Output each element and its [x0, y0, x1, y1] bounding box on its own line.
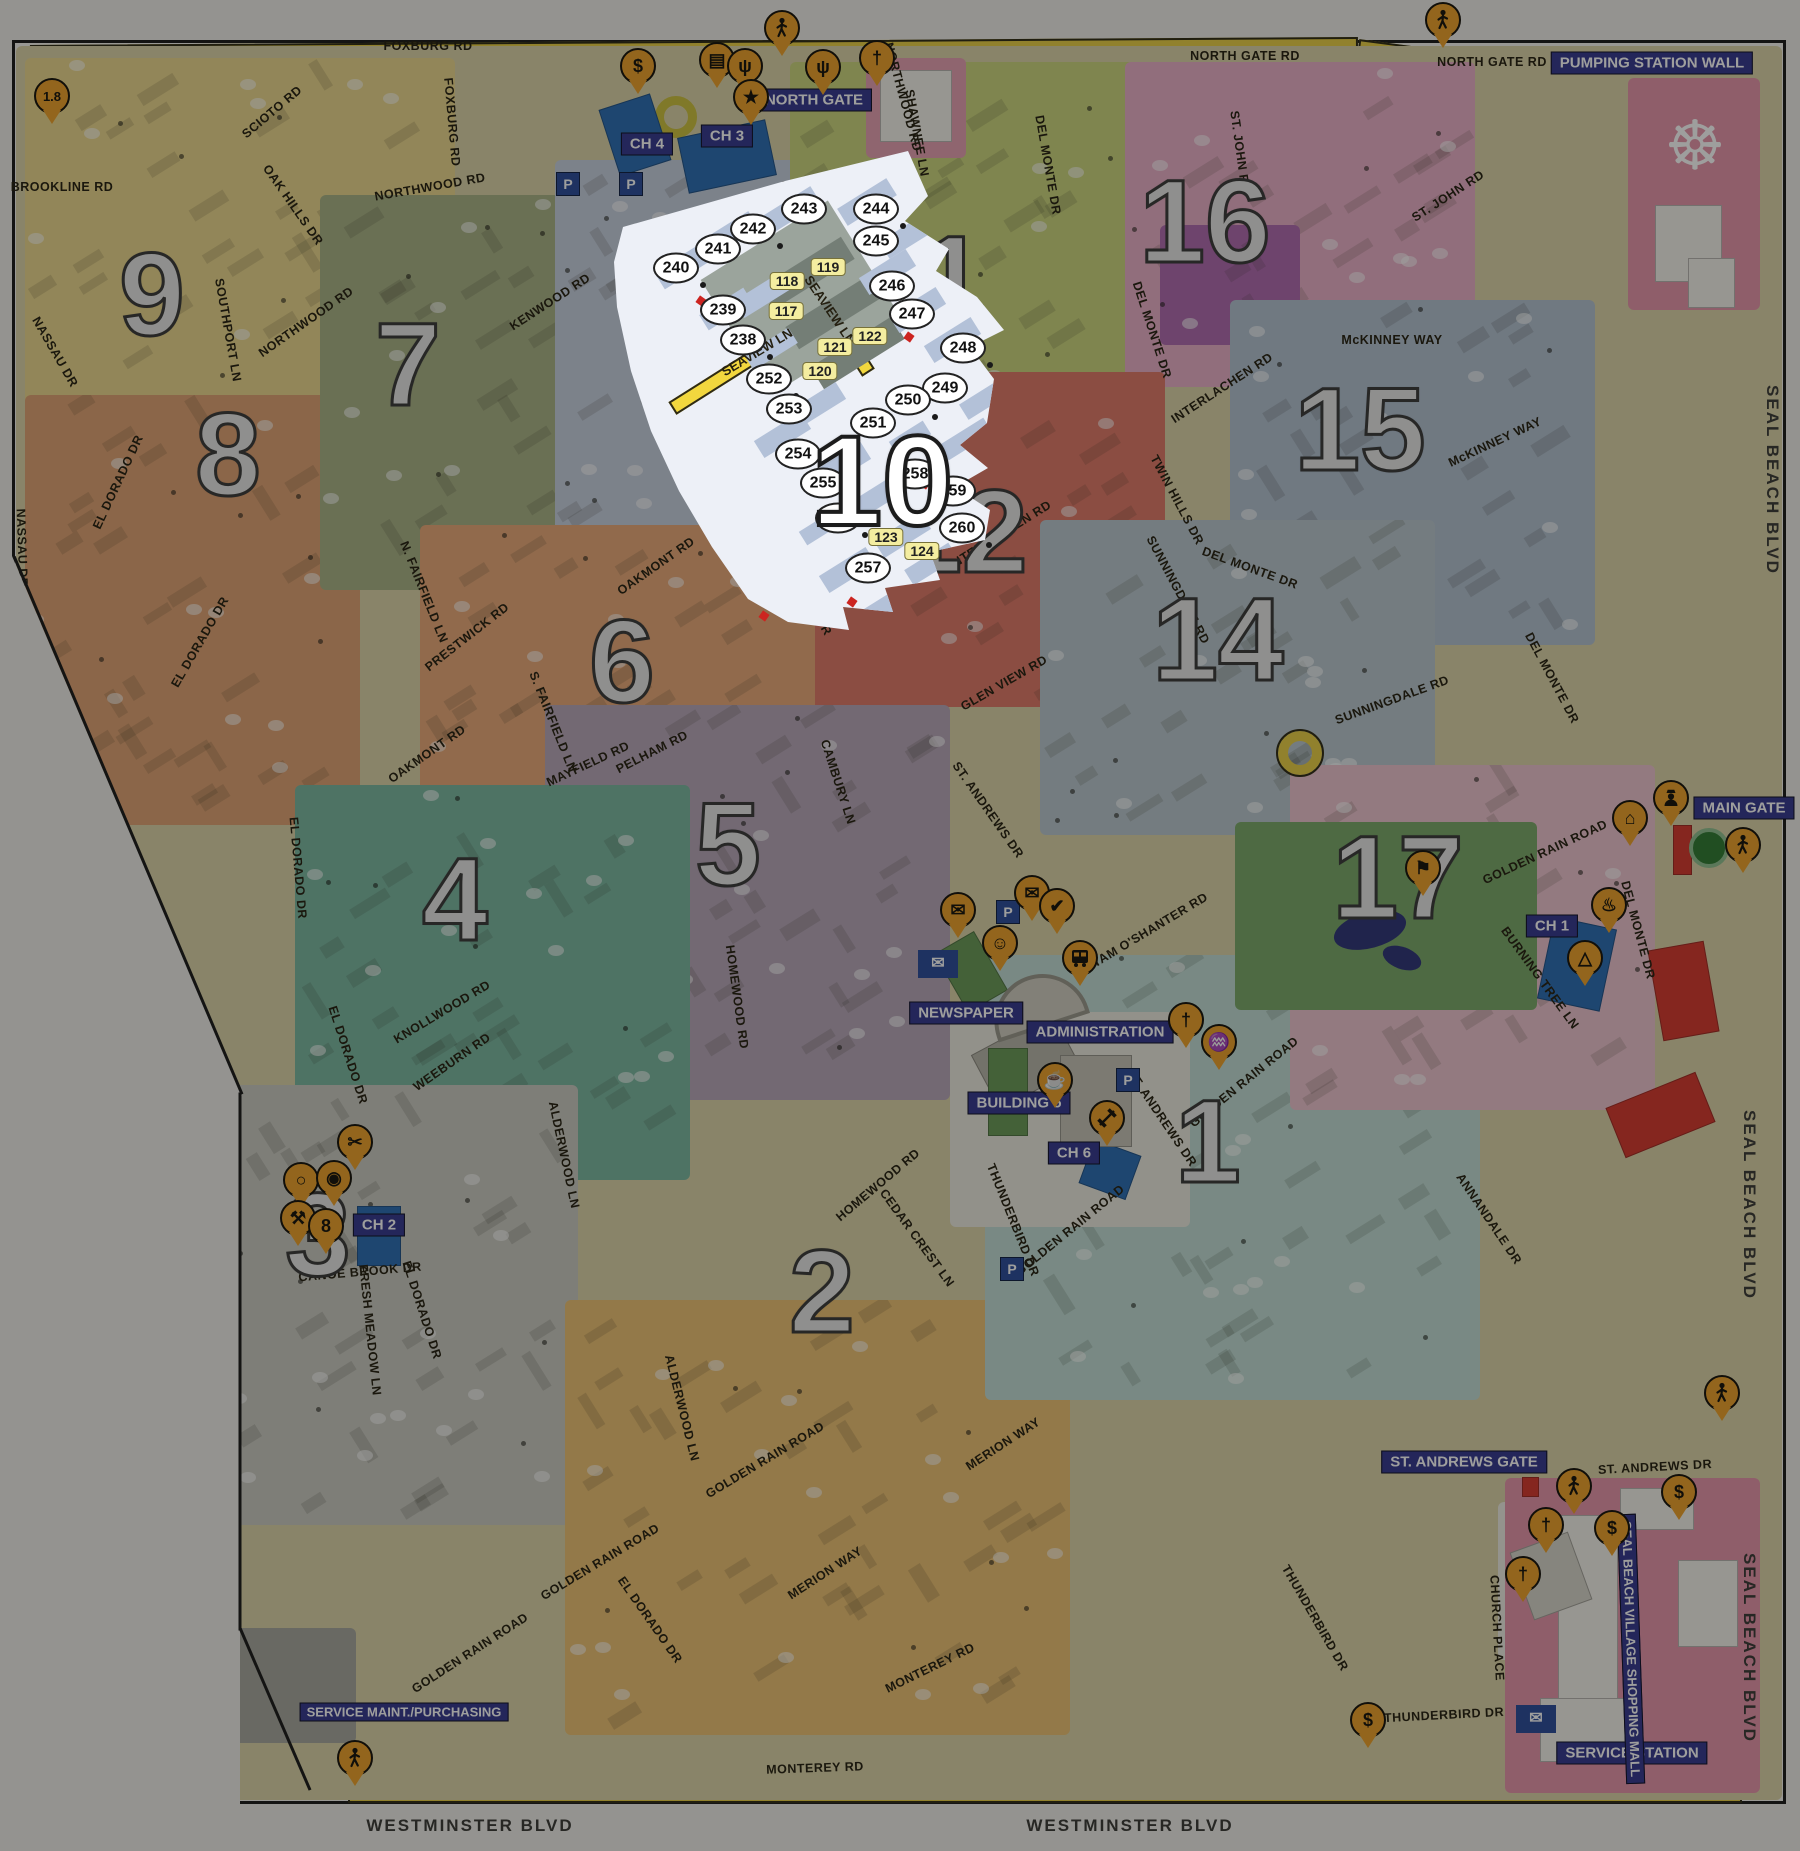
building-number-bubble: [1048, 650, 1064, 661]
map-dot: [565, 481, 570, 486]
building-number-bubble: [1305, 677, 1321, 688]
building-shape: [577, 393, 613, 420]
district-number: 14: [1152, 581, 1283, 699]
building-number-bubble: [240, 1472, 256, 1483]
info-badge[interactable]: CH 1: [1526, 915, 1578, 938]
swimming-pool-pin[interactable]: ♒: [1201, 1024, 1237, 1060]
building-number-bubble: [1410, 1074, 1426, 1085]
pedestrian-gate-pin[interactable]: [337, 1740, 373, 1776]
building-shape: [1538, 598, 1565, 631]
map-dot: [296, 494, 301, 499]
pedestrian-gate-pin[interactable]: [1556, 1468, 1592, 1504]
fitness-center-pin-icon: [1095, 1106, 1119, 1130]
building-number-bubble: [652, 212, 668, 223]
building-shape: [629, 1405, 652, 1433]
building-number-bubble: [1322, 239, 1338, 250]
check-pin[interactable]: ✔: [1039, 888, 1075, 924]
map-dot: [1547, 348, 1552, 353]
clubhouse-pin[interactable]: ⌂: [1612, 800, 1648, 836]
map-dot: [845, 195, 850, 200]
building-shape: [1508, 600, 1531, 619]
road-label: NORTH GATE RD: [1190, 49, 1300, 63]
parking-marker[interactable]: P: [1000, 1257, 1024, 1281]
bus-terminal-pin-icon: [1068, 946, 1092, 970]
building-number-bubble: [804, 251, 820, 262]
building-number-bubble: [344, 407, 360, 418]
building-number-bubble: [1116, 798, 1132, 809]
bus-terminal-pin[interactable]: [1062, 940, 1098, 976]
building-shape: [1122, 982, 1158, 1010]
map-dot: [373, 883, 378, 888]
building-shape: [724, 674, 762, 702]
coffee-shop-pin[interactable]: ☕: [1037, 1062, 1073, 1098]
building-shape: [481, 227, 503, 253]
building-number-bubble: [1542, 522, 1558, 533]
building-number-bubble: [1098, 418, 1114, 429]
map-dot: [1113, 758, 1118, 763]
building-shape: [704, 585, 742, 614]
gate-badge[interactable]: ST. ANDREWS GATE: [1381, 1451, 1547, 1474]
building-number-bubble: [769, 963, 785, 974]
building-number-bubble: [1233, 1284, 1249, 1295]
road-label: BROOKLINE RD: [11, 180, 114, 194]
building-number-bubble: [732, 541, 748, 552]
building-shape: [79, 272, 108, 295]
star-pin[interactable]: ★: [733, 79, 769, 115]
golf-course-pin-glyph: ⚑: [1415, 858, 1431, 879]
church-pin-glyph: †: [872, 48, 882, 69]
building-shape: [144, 102, 172, 124]
broadcast-antenna-pin-glyph: ψ: [816, 57, 830, 78]
building-shape: [143, 748, 176, 774]
dollar-sign-pin[interactable]: $: [620, 48, 656, 84]
map-dot: [1045, 352, 1050, 357]
building-shape: [1067, 484, 1092, 506]
building-number-bubble: [634, 1071, 650, 1082]
building-shape: [908, 1563, 940, 1603]
building-shape: [799, 372, 839, 403]
building-number-bubble: [225, 714, 241, 725]
building-shape: [1101, 473, 1129, 497]
building-number-bubble: [1247, 802, 1263, 813]
building-shape: [1043, 1274, 1075, 1315]
pedestrian-gate-pin-icon: [343, 1746, 367, 1770]
map-dot: [911, 1645, 916, 1650]
building-shape: [644, 1105, 677, 1132]
pedestrian-gate-pin[interactable]: [1425, 2, 1461, 38]
building-shape: [529, 1319, 556, 1342]
pedestrian-gate-pin[interactable]: [764, 10, 800, 46]
building-shape: [475, 1348, 507, 1373]
billiards-pin-glyph: 8: [321, 1216, 331, 1237]
dollar-sign-pin[interactable]: $: [1350, 1702, 1386, 1738]
map-dot: [698, 551, 703, 556]
coffee-shop-pin-glyph: ☕: [1044, 1070, 1066, 1091]
building-number-bubble: [915, 1689, 931, 1700]
building-number-bubble: [778, 1652, 794, 1663]
building-shape: [729, 216, 757, 252]
building-number-bubble: [889, 1016, 905, 1027]
building-number-bubble: [464, 1174, 480, 1185]
dollar-sign-pin-glyph: $: [633, 56, 643, 77]
building-shape: [538, 1043, 574, 1071]
theater-masks-pin[interactable]: ☺: [982, 925, 1018, 961]
building-shape: [1482, 490, 1515, 515]
pedestrian-gate-pin-icon: [1431, 8, 1455, 32]
building-shape: [295, 1312, 329, 1340]
map-dot: [1635, 967, 1640, 972]
map-dot: [1264, 731, 1269, 736]
info-badge[interactable]: PUMPING STATION WALL: [1551, 52, 1753, 75]
building-shape: [93, 526, 127, 554]
map-dot: [592, 498, 597, 503]
building-number-bubble: [1298, 656, 1314, 667]
map-dot: [1119, 956, 1124, 961]
road-label: NORTH GATE RD: [1437, 55, 1547, 69]
building-shape: [941, 344, 966, 373]
building-number-bubble: [943, 1492, 959, 1503]
parking-marker[interactable]: P: [1116, 1068, 1140, 1092]
building-shape: [910, 1319, 937, 1342]
fare-1-8-pin-glyph: 1.8: [43, 89, 61, 104]
building-number-bubble: [390, 1410, 406, 1421]
building-number-bubble: [614, 1689, 630, 1700]
woodshop-pin-glyph: ⚒: [290, 1208, 306, 1229]
edge-label: SEAL BEACH BLVD: [1739, 1553, 1759, 1743]
building-shape: [139, 443, 167, 467]
building-number-bubble: [1061, 506, 1077, 517]
building-shape: [1398, 1183, 1430, 1210]
broadcast-antenna-pin-glyph: ψ: [738, 56, 752, 77]
building-number-bubble: [1047, 1548, 1063, 1559]
building-shape: [1508, 324, 1534, 345]
district-number: 6: [589, 603, 655, 721]
building-shape: [1380, 301, 1413, 328]
library-pin-glyph: ▤: [708, 50, 725, 71]
building-number-bubble: [854, 969, 870, 980]
building-shape: [976, 148, 1010, 174]
parking-marker[interactable]: P: [619, 172, 643, 196]
map-dot: [326, 880, 331, 885]
building-number-bubble: [1031, 221, 1047, 232]
building-number-bubble: [323, 493, 339, 504]
map-dot: [623, 1026, 628, 1031]
dollar-sign-pin[interactable]: $: [1594, 1510, 1630, 1546]
building-number-bubble: [586, 875, 602, 886]
building-shape: [879, 856, 911, 881]
church-pin-glyph: †: [1541, 1515, 1551, 1536]
building-number-bubble: [1401, 256, 1417, 267]
map-dot: [797, 1389, 802, 1394]
edge-label: WESTMINSTER BLVD: [366, 1816, 573, 1836]
road-label: McKINNEY WAY: [1341, 333, 1442, 347]
church-pin[interactable]: †: [1528, 1507, 1564, 1543]
map-dot: [903, 379, 908, 384]
building-shape: [344, 206, 385, 238]
map-dot: [1241, 1239, 1246, 1244]
building-shape: [1101, 704, 1131, 729]
building-shape: [1339, 597, 1359, 621]
building-shape: [459, 562, 490, 587]
building-shape: [300, 1492, 326, 1514]
building-shape: [965, 99, 1007, 132]
dollar-sign-pin-glyph: $: [1363, 1710, 1373, 1731]
info-badge[interactable]: SERVICE MAINT./PURCHASING: [300, 1703, 509, 1722]
building-shape: [1251, 1092, 1292, 1123]
district-region: [228, 1085, 578, 1525]
building-number-bubble: [700, 389, 716, 400]
building-shape: [640, 386, 671, 411]
map-dot: [318, 639, 323, 644]
mailroom-pin-glyph: ✉: [1024, 883, 1039, 904]
building-number-bubble: [1394, 1074, 1410, 1085]
building-number-bubble: [1349, 272, 1365, 283]
district-number: 16: [1139, 163, 1270, 281]
map-dot: [542, 1340, 547, 1345]
building-number-bubble: [1076, 1249, 1092, 1260]
building-shape: [833, 924, 857, 954]
building-number-bubble: [612, 201, 628, 212]
building-shape: [1343, 186, 1381, 215]
building-shape: [545, 880, 574, 917]
building-shape: [1171, 773, 1207, 801]
building-number-bubble: [423, 790, 439, 801]
map-dot: [604, 216, 609, 221]
building-number-bubble: [240, 79, 256, 90]
building-number-bubble: [186, 604, 202, 615]
building-shape: [1332, 238, 1373, 269]
building-shape: [221, 672, 259, 701]
building-number-bubble: [1312, 1045, 1328, 1056]
map-dot: [966, 1430, 971, 1435]
building-shape: [739, 1573, 779, 1604]
building-number-bubble: [1274, 1256, 1290, 1267]
building-shape: [320, 936, 346, 959]
dollar-sign-pin-glyph: $: [1674, 1482, 1684, 1503]
building-number-bubble: [357, 1450, 373, 1461]
building-shape: [1417, 1255, 1443, 1276]
roundabout: [1278, 731, 1322, 775]
info-badge[interactable]: CH 6: [1048, 1142, 1100, 1165]
building-number-bubble: [1440, 141, 1456, 152]
building-number-bubble: [1249, 326, 1265, 337]
pyramid-pin-glyph: △: [1578, 948, 1592, 969]
mall-building: [1678, 1560, 1738, 1647]
map-dot: [1055, 818, 1060, 823]
mailroom-pin[interactable]: ✉: [940, 892, 976, 928]
map-dot: [989, 1560, 994, 1565]
district-number: 15: [1294, 371, 1425, 489]
building-number-bubble: [581, 464, 597, 475]
building-shape: [1161, 710, 1189, 734]
broadcast-antenna-pin[interactable]: ψ: [805, 49, 841, 85]
church-pin[interactable]: †: [1505, 1556, 1541, 1592]
building-shape: [67, 395, 95, 416]
map-boundary: [239, 1092, 242, 1630]
map-dot: [465, 1198, 470, 1203]
map-dot: [1288, 1124, 1293, 1129]
building-number-bubble: [1203, 1287, 1219, 1298]
church-pin[interactable]: †: [859, 40, 895, 76]
building-shape: [720, 1381, 762, 1413]
building-number-bubble: [627, 465, 643, 476]
building-shape: [1346, 1357, 1372, 1378]
map-dot: [179, 154, 184, 159]
paddle-court-pin-glyph: ○: [296, 1170, 307, 1191]
building-shape: [1590, 1036, 1626, 1065]
info-badge[interactable]: NEWSPAPER: [909, 1002, 1023, 1025]
pedestrian-gate-pin[interactable]: [1704, 1375, 1740, 1411]
golf-course-pin[interactable]: ⚑: [1405, 850, 1441, 886]
map-dot: [1132, 227, 1137, 232]
church-pin-glyph: †: [1518, 1564, 1528, 1585]
map-dot: [171, 490, 176, 495]
fitness-center-pin[interactable]: [1089, 1100, 1125, 1136]
church-pin[interactable]: †: [1168, 1002, 1204, 1038]
info-badge[interactable]: CH 2: [353, 1214, 405, 1237]
map-outside-area: [12, 1092, 240, 1806]
building-number-bubble: [28, 233, 44, 244]
building-shape: [202, 238, 235, 264]
pedestrian-gate-pin[interactable]: [1725, 827, 1761, 863]
building-number-bubble: [1605, 868, 1621, 879]
building-shape: [1363, 95, 1394, 119]
building-shape: [1345, 1214, 1386, 1245]
building-number-bubble: [84, 128, 100, 139]
sewing-room-pin[interactable]: ✂: [337, 1124, 373, 1160]
pedestrian-gate-pin-icon: [1710, 1381, 1734, 1405]
building-shape: [300, 1141, 325, 1163]
broadcast-antenna-pin[interactable]: ψ: [727, 48, 763, 84]
building-number-bubble: [570, 1644, 586, 1655]
dollar-sign-pin-glyph: $: [1607, 1518, 1617, 1539]
building-shape: [56, 530, 84, 555]
edge-label: SEAL BEACH BLVD: [1739, 1110, 1759, 1300]
gate-badge[interactable]: MAIN GATE: [1693, 797, 1794, 820]
building-shape: [245, 1152, 270, 1181]
building-shape: [496, 1028, 521, 1060]
building-shape: [308, 59, 333, 91]
pedestrian-gate-pin-icon: [1562, 1474, 1586, 1498]
building-number-bubble: [941, 633, 957, 644]
building-shape: [817, 1515, 856, 1546]
building-number-bubble: [548, 945, 564, 956]
swimming-pool-pin-glyph: ♒: [1208, 1032, 1230, 1053]
building-shape: [331, 1098, 350, 1121]
district-number: 1: [1175, 1083, 1241, 1201]
map-dot: [118, 121, 123, 126]
building-shape: [858, 1300, 893, 1324]
building-number-bubble: [1349, 1282, 1365, 1293]
building-shape: [513, 426, 552, 456]
building-shape: [728, 919, 761, 945]
map-dot: [733, 1386, 738, 1391]
building-shape: [146, 151, 180, 178]
building-shape: [1105, 574, 1143, 604]
building-number-bubble: [436, 1425, 452, 1436]
building-number-bubble: [884, 344, 900, 355]
building-shape: [394, 1092, 422, 1128]
building-number-bubble: [307, 869, 323, 880]
building-number-bubble: [806, 1487, 822, 1498]
district-number: 4: [422, 841, 488, 959]
building-number-bubble: [1182, 318, 1198, 329]
barbecue-pin-glyph: ♨: [1601, 895, 1617, 916]
building-number-bubble: [781, 1395, 797, 1406]
building-shape: [122, 675, 145, 701]
building-shape: [1125, 793, 1163, 821]
dollar-sign-pin[interactable]: $: [1661, 1474, 1697, 1510]
map-dot: [1418, 307, 1423, 312]
district-number: 9: [119, 236, 185, 354]
map-dot: [837, 1045, 842, 1050]
building-shape: [772, 775, 802, 813]
map-dot: [502, 533, 507, 538]
building-shape: [511, 535, 548, 563]
building-number-bubble: [1068, 167, 1084, 178]
building-shape: [521, 1351, 551, 1391]
parking-marker[interactable]: P: [996, 900, 1020, 924]
building-number-bubble: [1377, 68, 1393, 79]
edge-label: SEAL BEACH BLVD: [1762, 385, 1782, 575]
info-badge[interactable]: CH 4: [621, 133, 673, 156]
security-officer-pin[interactable]: [1653, 780, 1689, 816]
building-shape: [876, 883, 899, 903]
building-number-bubble: [272, 762, 288, 773]
building-shape: [1372, 546, 1402, 571]
building-shape: [460, 270, 500, 300]
building-number-bubble: [929, 736, 945, 747]
info-badge[interactable]: ADMINISTRATION: [1027, 1021, 1174, 1044]
building-shape: [1283, 1226, 1310, 1250]
barbecue-pin[interactable]: ♨: [1591, 887, 1627, 923]
building-shape: [780, 909, 821, 942]
fare-1-8-pin[interactable]: 1.8: [34, 78, 70, 114]
map-dot: [1364, 166, 1369, 171]
building-shape: [862, 1493, 889, 1515]
building-shape: [577, 1393, 605, 1429]
paddle-court-pin[interactable]: ○: [283, 1162, 319, 1198]
map-dot: [220, 373, 225, 378]
billiards-pin[interactable]: 8: [308, 1208, 344, 1244]
basketball-court-pin[interactable]: ◉: [316, 1160, 352, 1196]
building-shape: [582, 174, 608, 196]
map-dot: [1160, 302, 1165, 307]
building-shape: [75, 104, 108, 131]
building-number-bubble: [767, 596, 783, 607]
parking-marker[interactable]: P: [556, 172, 580, 196]
building-shape: [724, 1557, 750, 1579]
building-shape: [677, 1569, 704, 1591]
building-shape: [584, 1318, 618, 1344]
pyramid-pin[interactable]: △: [1567, 940, 1603, 976]
building-shape: [719, 401, 744, 422]
building-shape: [1171, 1252, 1193, 1277]
building-shape: [828, 982, 849, 1008]
building-shape: [258, 1121, 286, 1154]
building-shape: [842, 981, 883, 1013]
building-shape: [1424, 1209, 1451, 1241]
building-shape: [916, 1403, 939, 1423]
building-shape: [800, 705, 836, 729]
check-pin-glyph: ✔: [1049, 896, 1064, 917]
map-dot: [1108, 156, 1113, 161]
building-shape: [938, 157, 965, 179]
building-shape: [189, 189, 230, 222]
building-shape: [1412, 1032, 1442, 1069]
building-number-bubble: [793, 423, 809, 434]
building-shape: [284, 465, 319, 493]
